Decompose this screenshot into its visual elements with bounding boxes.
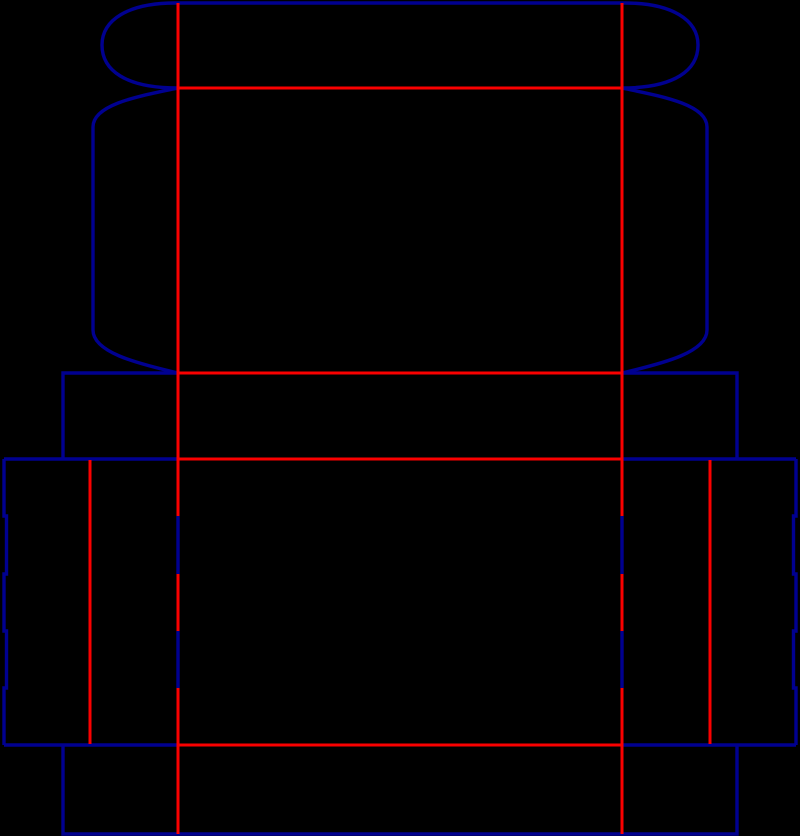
bottom-band-outline	[63, 745, 737, 834]
left-serrated-edge	[4, 459, 7, 745]
left-tab-outline	[63, 373, 178, 459]
dieline-canvas	[0, 0, 800, 836]
right-serrated-edge	[794, 459, 797, 745]
tuck-flap-outline	[102, 3, 698, 88]
lid-right-dust-flap	[622, 88, 707, 373]
right-tab-outline	[622, 373, 737, 459]
dieline-drawing	[0, 0, 800, 836]
lid-left-dust-flap	[93, 88, 178, 373]
